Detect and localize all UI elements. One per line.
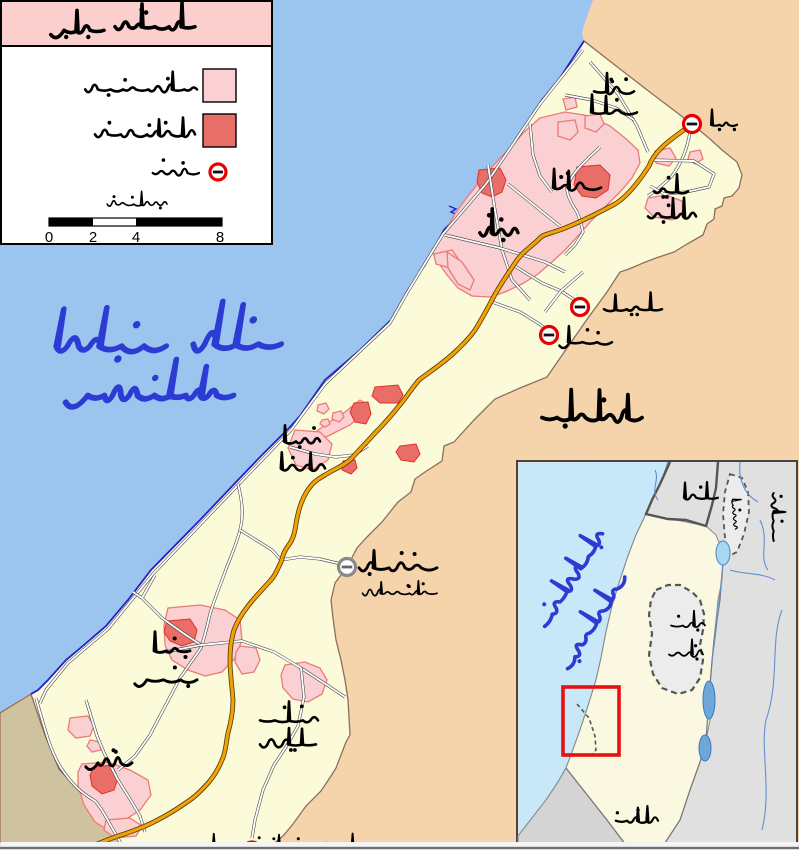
svg-text:0: 0 xyxy=(45,229,53,246)
svg-text:2: 2 xyxy=(89,229,97,246)
svg-text:4: 4 xyxy=(132,229,140,246)
svg-text:8: 8 xyxy=(216,229,224,246)
